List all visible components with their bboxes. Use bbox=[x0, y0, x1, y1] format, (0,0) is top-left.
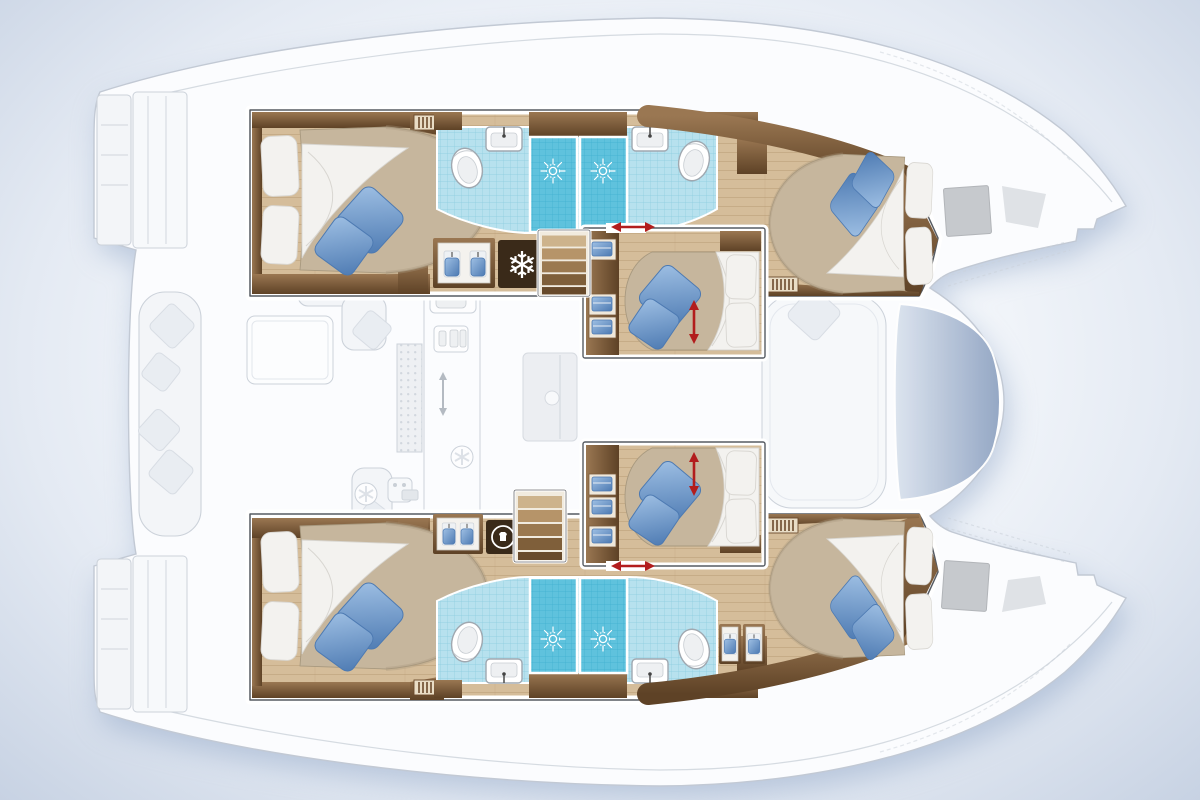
hanging-clothes-icon bbox=[724, 634, 737, 655]
towel-icon bbox=[592, 477, 612, 491]
double-bed-middle-lower bbox=[625, 448, 759, 548]
forward-seating-ghost bbox=[762, 286, 886, 508]
hanging-clothes-icon bbox=[748, 634, 761, 655]
snowflake-icon: ❄ bbox=[506, 244, 537, 287]
companionway-stairs-top bbox=[538, 230, 590, 296]
shower-stall bbox=[580, 137, 627, 232]
shower-stall bbox=[580, 578, 627, 673]
towel-icon bbox=[592, 500, 612, 514]
catamaran-deck-plan-page: ❄ bbox=[0, 0, 1200, 800]
middle-cabin-upper bbox=[583, 223, 765, 358]
vent-grille-icon bbox=[768, 518, 798, 533]
washbasin-icon bbox=[632, 659, 668, 683]
hanging-clothes-icon bbox=[444, 251, 460, 277]
hanging-locker-top bbox=[433, 238, 495, 288]
salon-table-ghost bbox=[523, 353, 577, 441]
catamaran-deck-plan: ❄ bbox=[0, 0, 1200, 800]
hanging-clothes-icon bbox=[460, 523, 474, 545]
cockpit-table bbox=[247, 316, 333, 384]
wardrobe bbox=[720, 231, 761, 251]
shower-stall bbox=[530, 137, 577, 232]
washbasin-icon bbox=[486, 659, 522, 683]
shower-stall bbox=[530, 578, 577, 673]
towel-icon bbox=[592, 320, 612, 334]
towel-icon bbox=[592, 297, 612, 311]
towel-cubbies bbox=[589, 474, 616, 547]
washbasin-icon bbox=[486, 127, 522, 151]
middle-cabin-lower bbox=[583, 442, 765, 571]
stern-platform-top bbox=[97, 92, 187, 248]
companionway-stairs-bottom bbox=[514, 490, 566, 562]
washbasin-icon bbox=[632, 127, 668, 151]
hanging-clothes-icon bbox=[470, 251, 486, 277]
towel-icon bbox=[592, 242, 612, 256]
towel-icon bbox=[592, 529, 612, 543]
hanging-clothes-icon bbox=[442, 523, 456, 545]
hanging-locker-bottom bbox=[433, 514, 483, 554]
aft-cockpit-bench bbox=[136, 292, 201, 536]
vent-grille-icon bbox=[768, 277, 798, 292]
stern-platform-bottom bbox=[97, 556, 187, 712]
